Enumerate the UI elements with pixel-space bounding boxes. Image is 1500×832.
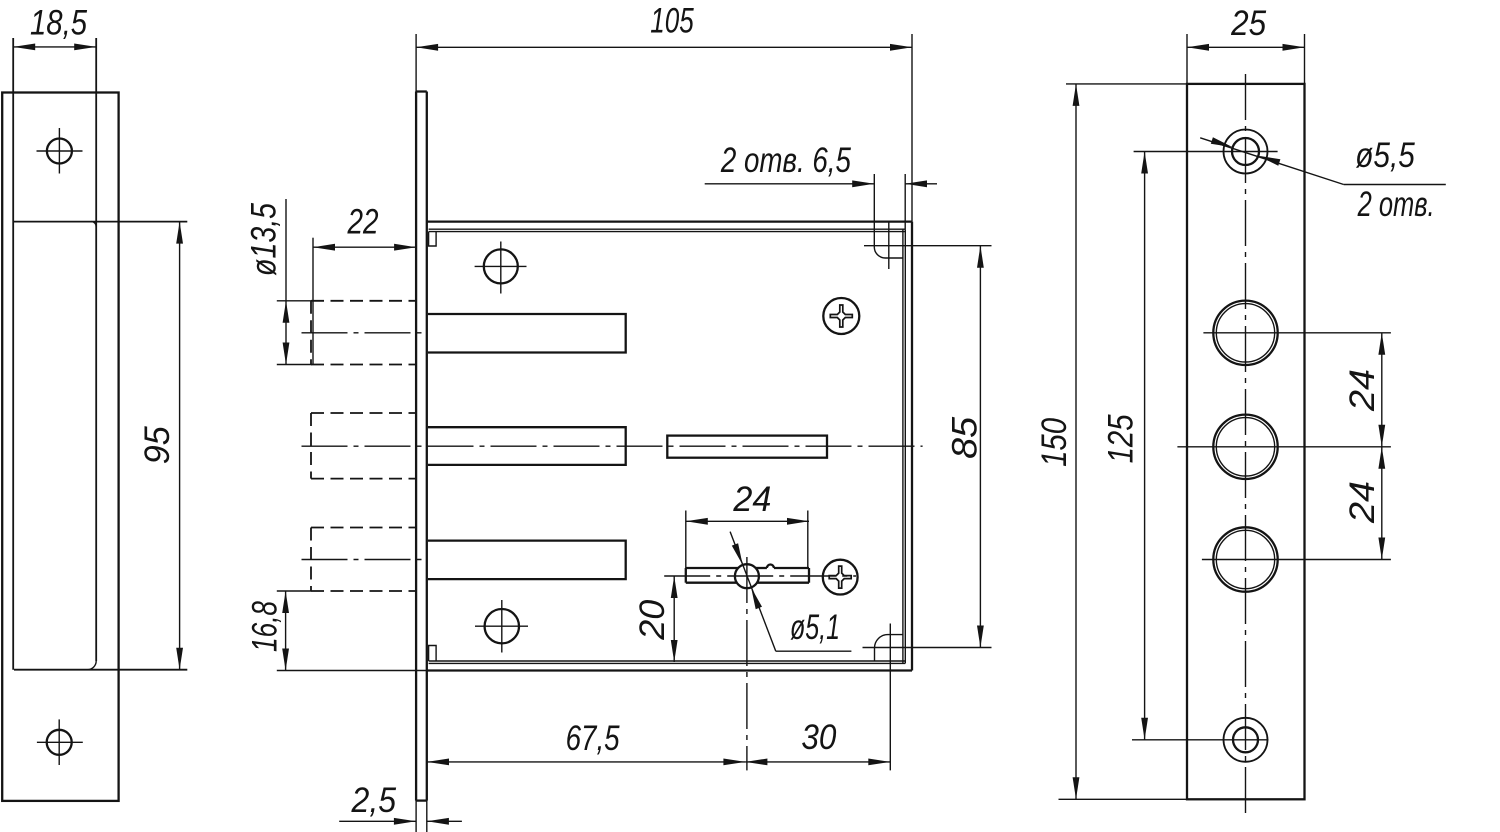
- svg-text:25: 25: [1230, 4, 1266, 43]
- svg-text:24: 24: [1343, 369, 1382, 412]
- svg-text:16,8: 16,8: [246, 601, 285, 652]
- svg-text:18,5: 18,5: [30, 4, 87, 43]
- svg-text:105: 105: [650, 2, 694, 41]
- svg-text:ø13,5: ø13,5: [245, 203, 284, 276]
- svg-text:30: 30: [801, 718, 836, 757]
- svg-text:24: 24: [732, 480, 771, 519]
- svg-text:150: 150: [1035, 417, 1074, 466]
- svg-text:2 отв.: 2 отв.: [1357, 185, 1435, 224]
- svg-text:20: 20: [633, 599, 672, 641]
- svg-text:ø5,1: ø5,1: [790, 608, 840, 647]
- svg-text:67,5: 67,5: [566, 719, 620, 758]
- svg-text:125: 125: [1102, 414, 1141, 463]
- svg-text:ø5,5: ø5,5: [1355, 136, 1415, 175]
- svg-text:85: 85: [946, 416, 985, 459]
- svg-text:22: 22: [347, 203, 379, 242]
- svg-text:24: 24: [1343, 481, 1382, 524]
- svg-text:2 отв. 6,5: 2 отв. 6,5: [720, 141, 851, 180]
- svg-text:95: 95: [138, 426, 177, 465]
- svg-text:2,5: 2,5: [351, 781, 397, 820]
